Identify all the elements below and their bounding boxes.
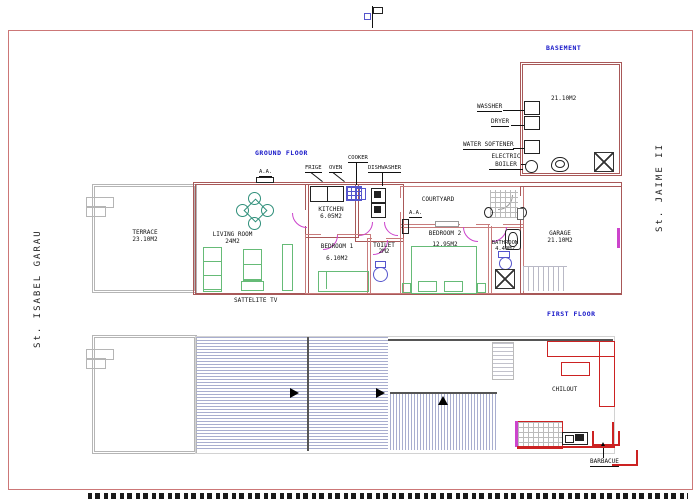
courtyard-tiles: [490, 190, 518, 218]
side-seat-icon: [282, 244, 293, 291]
cooker-leader-line: [356, 162, 357, 185]
door-opening: [372, 237, 386, 240]
garage-area-label: 21.10M2: [540, 237, 580, 245]
water-softener-label: WATER SOFTENER: [463, 141, 514, 150]
ac-unit-bedroom2: [402, 219, 409, 234]
nightstand-icon: [477, 283, 486, 293]
sofa-icon: [203, 247, 222, 292]
slope-arrow-up: [438, 396, 448, 405]
cooker-label: COOKER: [348, 155, 368, 163]
dishwasher-leader-line: [382, 172, 383, 186]
terrace-steps: [86, 206, 106, 217]
roof-ridge-line: [307, 337, 309, 451]
dryer-label: DRYER: [491, 118, 509, 127]
chillout-side-bench: [599, 341, 615, 407]
ac-label-bedroom2: A.A.: [409, 210, 422, 218]
bathtub-inner: [508, 232, 518, 247]
living-room-area-label: 24M2: [195, 238, 270, 246]
bedroom1-name-label: BEDROOM 1: [308, 243, 366, 251]
basement-title: BASEMENT: [546, 44, 581, 52]
dryer-icon: [524, 116, 540, 130]
slope-arrow-right: [376, 388, 385, 398]
pergola-icon: [517, 421, 563, 449]
nightstand-icon: [402, 283, 411, 293]
toilet-bowl-icon: [373, 267, 388, 282]
boiler-unit-icon: [356, 188, 366, 200]
dryer-leader-line: [511, 125, 524, 126]
garage-stairs: [523, 266, 567, 291]
washer-leader-line: [503, 110, 524, 111]
street-label-left: St. ISABEL GARAU: [33, 158, 43, 348]
armchair-icon: [243, 249, 262, 281]
basement-toilet-seat: [555, 160, 565, 168]
first-floor-title: FIRST FLOOR: [547, 310, 596, 318]
bedroom2-name-label: BEDROOM 2: [415, 230, 475, 238]
garage-door: [617, 228, 620, 248]
fridge-icon: [310, 186, 328, 202]
coffee-table-icon: [241, 281, 264, 291]
water-softener-icon: [524, 140, 540, 154]
basement-shower-tray-icon: [594, 152, 614, 172]
door-opening: [460, 223, 476, 226]
chillout-table: [561, 362, 590, 376]
pergola-door-edge: [515, 421, 518, 447]
clipped-bottom-text: [88, 493, 688, 499]
toilet-area-label: 2M2: [367, 248, 401, 256]
door-opening: [490, 223, 503, 226]
floor-plan-canvas: St. ISABEL GARAU St. JAIME II BASEMENT 2…: [0, 0, 700, 500]
chillout-wall-extension-h: [612, 464, 638, 466]
chillout-bottom-wall: [517, 446, 615, 448]
door-opening: [400, 198, 403, 212]
tall-unit-icon-inner: [374, 206, 381, 213]
fridge-label: FRIGE: [305, 165, 322, 173]
chillout-right-wall: [612, 422, 614, 448]
electric-boiler-icon: [525, 160, 538, 173]
outdoor-sink-icon: [565, 435, 574, 443]
bed1-pillow-line: [326, 272, 327, 289]
dishwasher-label: DISHWASHER: [368, 165, 401, 173]
dishwasher-icon-inner: [374, 191, 381, 198]
garage-window: [517, 208, 524, 220]
kitchen-area-label: 6.05M2: [308, 213, 354, 221]
barbecue-arrow-line: [603, 447, 604, 458]
roof-edge-line-mid: [390, 392, 497, 394]
satellite-tv-label: SATTELITE TV: [234, 297, 277, 305]
ac-unit-living: [256, 177, 274, 183]
electric-boiler-label: ELECTRIC BOILER: [489, 153, 523, 170]
basement-area-label: 21.10M2: [551, 95, 576, 103]
oven-icon: [327, 186, 344, 202]
plant-pot-icon: [484, 207, 493, 218]
outdoor-hob-icon: [575, 434, 584, 441]
first-floor-stairwell: [492, 342, 514, 380]
courtyard-window: [435, 221, 459, 227]
survey-marker-tick: [364, 13, 371, 20]
slope-arrow-right: [290, 388, 299, 398]
washer-label: WASSHER: [477, 103, 502, 112]
shower-tray-icon: [495, 269, 515, 289]
washer-icon: [524, 101, 540, 115]
water-softener-leader-line: [513, 148, 524, 149]
street-label-right: St. JAIME II: [655, 92, 665, 232]
chillout-label: CHILOUT: [552, 386, 577, 394]
survey-marker-flag: [373, 7, 383, 14]
bedroom1-area-label: 6.10M2: [308, 255, 366, 263]
barbecue-icon: [592, 431, 620, 446]
ground-floor-title: GROUND FLOOR: [255, 149, 308, 157]
terrace-area-label: 23.10M2: [115, 236, 175, 244]
bed2-pillow-icon: [418, 281, 437, 292]
bed2-pillow-icon: [444, 281, 463, 292]
oven-label: OVEN: [329, 165, 342, 173]
courtyard-name-label: COURTYARD: [408, 196, 468, 204]
first-terrace-steps: [86, 358, 106, 369]
